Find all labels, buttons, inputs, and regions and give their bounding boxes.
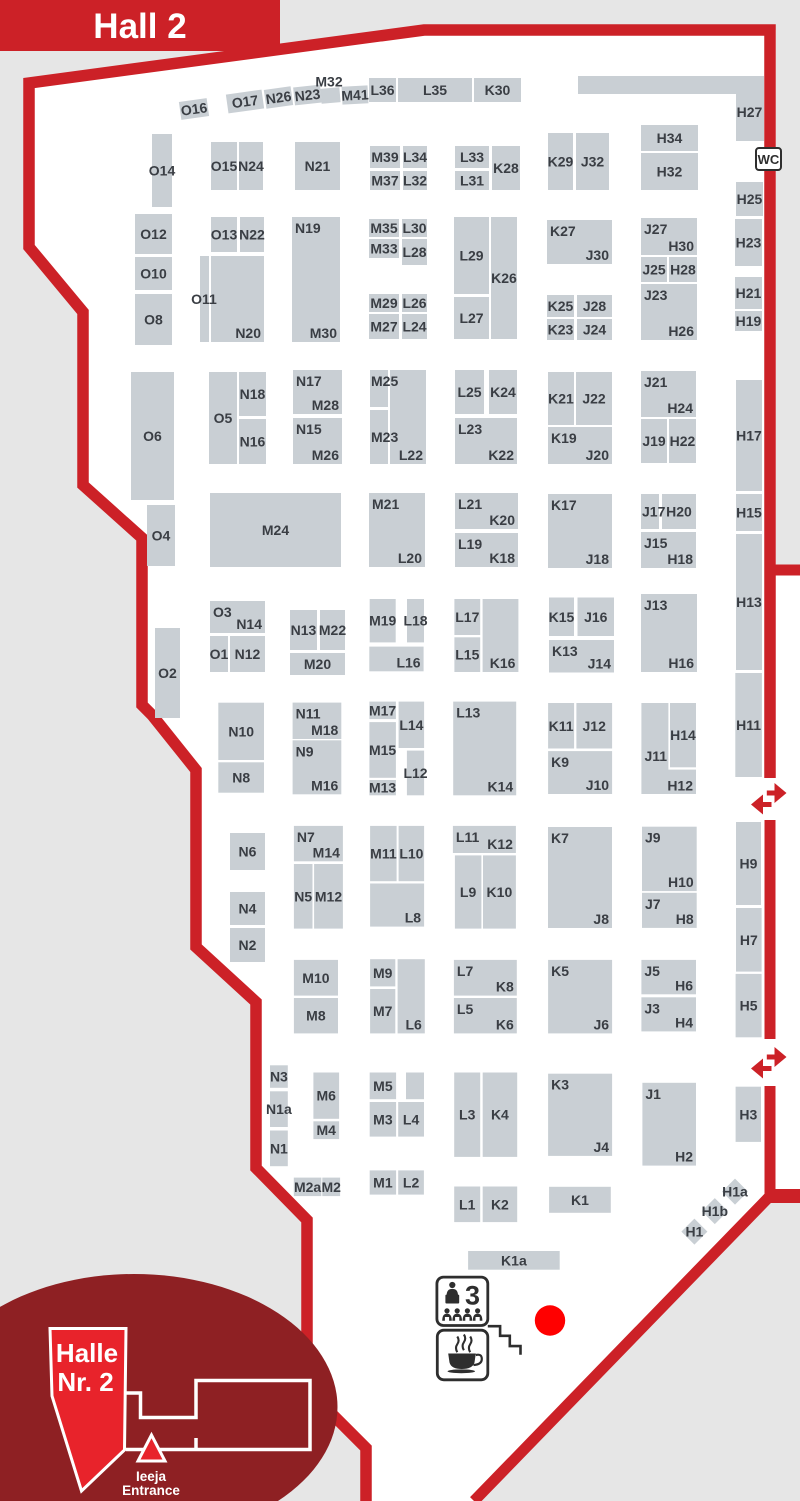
svg-text:J17: J17 [642,504,666,520]
svg-text:J30: J30 [586,247,610,263]
svg-text:L22: L22 [399,447,423,463]
svg-text:O14: O14 [149,163,176,179]
svg-text:O3: O3 [213,604,232,620]
svg-text:M28: M28 [312,397,339,413]
svg-text:J1: J1 [645,1086,661,1102]
svg-text:O8: O8 [144,312,163,328]
svg-text:L6: L6 [405,1016,422,1032]
svg-text:K18: K18 [489,550,515,566]
svg-text:N14: N14 [236,616,262,632]
svg-text:K12: K12 [487,836,513,852]
svg-text:O4: O4 [152,528,171,544]
svg-text:H25: H25 [737,191,763,207]
svg-text:O2: O2 [158,665,177,681]
svg-text:N19: N19 [295,220,321,236]
svg-text:M23: M23 [371,429,398,445]
svg-text:K30: K30 [485,82,511,98]
svg-text:M37: M37 [371,173,398,189]
svg-text:L15: L15 [455,647,479,663]
svg-text:M25: M25 [371,373,398,389]
svg-text:H24: H24 [667,400,693,416]
svg-text:L13: L13 [456,705,480,721]
svg-text:H26: H26 [668,323,694,339]
svg-text:O1: O1 [210,646,229,662]
svg-text:N6: N6 [239,844,257,860]
svg-text:L24: L24 [402,319,426,335]
svg-text:H5: H5 [740,998,758,1014]
svg-text:J12: J12 [583,718,607,734]
svg-text:J8: J8 [593,911,609,927]
svg-text:K6: K6 [496,1016,514,1032]
svg-text:L33: L33 [460,149,484,165]
svg-text:L19: L19 [458,536,482,552]
svg-text:H19: H19 [736,313,762,329]
svg-text:K14: K14 [488,778,514,794]
svg-text:L16: L16 [396,654,420,670]
svg-text:N20: N20 [235,325,261,341]
svg-text:L36: L36 [370,82,394,98]
svg-text:WC: WC [758,152,780,167]
svg-text:K4: K4 [491,1107,509,1123]
svg-text:H18: H18 [667,551,693,567]
svg-text:M14: M14 [313,844,340,860]
svg-text:N13: N13 [291,622,317,638]
svg-text:J23: J23 [644,287,668,303]
svg-text:M1: M1 [373,1175,393,1191]
svg-text:M26: M26 [312,447,339,463]
svg-text:J28: J28 [583,298,607,314]
svg-text:H34: H34 [657,130,683,146]
svg-text:M39: M39 [371,149,398,165]
svg-text:J10: J10 [586,777,610,793]
svg-text:J11: J11 [645,748,668,764]
svg-text:M32: M32 [315,74,342,90]
svg-text:H15: H15 [736,505,762,521]
svg-text:K23: K23 [548,322,574,338]
svg-text:L23: L23 [458,421,482,437]
svg-text:N1a: N1a [266,1101,292,1117]
svg-text:M5: M5 [373,1078,393,1094]
svg-text:O15: O15 [211,158,238,174]
svg-text:K29: K29 [548,154,574,170]
svg-text:L10: L10 [399,846,423,862]
svg-text:H2: H2 [675,1149,693,1165]
svg-text:L30: L30 [402,220,426,236]
svg-text:M2: M2 [321,1179,341,1195]
svg-text:H21: H21 [736,285,762,301]
svg-text:J20: J20 [586,447,610,463]
svg-text:H14: H14 [670,727,696,743]
svg-text:O13: O13 [211,227,238,243]
svg-text:M20: M20 [304,656,331,672]
svg-text:J9: J9 [645,830,661,846]
svg-text:K15: K15 [549,609,575,625]
svg-text:J18: J18 [586,551,610,567]
svg-text:O5: O5 [214,410,233,426]
svg-text:J22: J22 [582,391,606,407]
svg-text:N8: N8 [232,770,250,786]
svg-text:Halle: Halle [56,1338,118,1368]
svg-text:N21: N21 [305,158,331,174]
svg-text:K9: K9 [551,754,569,770]
svg-text:K2: K2 [491,1196,509,1212]
svg-text:N17: N17 [296,373,322,389]
svg-text:H10: H10 [668,874,694,890]
svg-text:L26: L26 [402,295,426,311]
svg-text:H7: H7 [740,932,758,948]
svg-text:M16: M16 [311,777,338,793]
svg-text:H17: H17 [736,428,762,444]
svg-text:J27: J27 [644,221,668,237]
svg-text:L25: L25 [457,384,481,400]
svg-text:M11: M11 [370,846,397,862]
svg-text:H23: H23 [736,235,762,251]
svg-text:Ieeja: Ieeja [136,1469,167,1484]
svg-text:H11: H11 [736,717,761,733]
svg-text:K1: K1 [571,1192,589,1208]
svg-text:L28: L28 [402,244,426,260]
svg-text:K26: K26 [491,270,517,286]
svg-text:J4: J4 [594,1139,610,1155]
svg-text:N22: N22 [239,227,265,243]
svg-text:M24: M24 [262,522,289,538]
svg-text:M21: M21 [372,496,399,512]
svg-text:L12: L12 [403,765,427,781]
svg-text:N2: N2 [239,937,257,953]
svg-text:K22: K22 [488,447,514,463]
svg-text:H12: H12 [667,778,693,794]
svg-text:N18: N18 [240,386,266,402]
svg-text:J5: J5 [644,963,660,979]
svg-text:H30: H30 [668,238,694,254]
svg-text:M13: M13 [369,780,396,796]
svg-text:M4: M4 [316,1122,336,1138]
svg-text:J13: J13 [644,597,668,613]
svg-text:H6: H6 [675,977,693,993]
svg-text:M27: M27 [370,319,397,335]
svg-text:M9: M9 [373,965,393,981]
svg-text:K16: K16 [490,655,516,671]
svg-text:L4: L4 [403,1111,420,1127]
svg-text:K28: K28 [493,160,519,176]
svg-text:L7: L7 [457,963,474,979]
svg-text:L21: L21 [458,496,482,512]
svg-text:J15: J15 [644,535,668,551]
svg-text:M35: M35 [370,220,397,236]
svg-text:L34: L34 [403,149,427,165]
svg-text:L8: L8 [405,910,422,926]
svg-text:L5: L5 [457,1001,474,1017]
svg-text:K17: K17 [551,497,577,513]
svg-text:H28: H28 [670,262,696,278]
svg-text:N10: N10 [228,723,254,739]
svg-text:N24: N24 [238,158,264,174]
svg-text:N5: N5 [294,888,312,904]
svg-text:O10: O10 [140,266,167,282]
svg-text:L18: L18 [403,613,427,629]
svg-text:H1b: H1b [702,1203,728,1219]
svg-text:K27: K27 [550,223,576,239]
svg-text:N1: N1 [270,1140,288,1156]
svg-text:M2a: M2a [294,1179,321,1195]
svg-text:Entrance: Entrance [122,1483,180,1498]
svg-text:H4: H4 [675,1014,693,1030]
svg-text:M41: M41 [341,86,369,103]
svg-text:L32: L32 [403,173,427,189]
svg-text:M22: M22 [319,622,346,638]
svg-text:H13: H13 [736,594,762,610]
svg-text:K24: K24 [490,384,516,400]
svg-text:L14: L14 [399,717,423,733]
svg-text:J7: J7 [645,896,661,912]
svg-text:M3: M3 [373,1111,393,1127]
svg-text:H32: H32 [657,164,683,180]
svg-text:J6: J6 [594,1016,610,1032]
svg-text:J3: J3 [644,1000,660,1016]
svg-text:L1: L1 [459,1196,476,1212]
svg-text:M12: M12 [315,888,342,904]
svg-text:N4: N4 [239,901,257,917]
svg-text:H1: H1 [685,1224,703,1240]
svg-text:L2: L2 [403,1175,420,1191]
svg-text:M30: M30 [310,325,337,341]
svg-text:J16: J16 [584,609,608,625]
svg-text:H3: H3 [739,1106,757,1122]
svg-text:H1a: H1a [722,1184,748,1200]
svg-text:M6: M6 [316,1088,336,1104]
svg-text:K5: K5 [551,963,569,979]
svg-text:L17: L17 [455,609,479,625]
svg-text:N3: N3 [270,1069,288,1085]
svg-text:J25: J25 [642,262,666,278]
svg-text:O6: O6 [143,428,162,444]
svg-text:H16: H16 [668,655,694,671]
svg-text:M33: M33 [370,241,397,257]
svg-text:M8: M8 [306,1008,326,1024]
svg-text:N9: N9 [296,743,314,759]
svg-text:L31: L31 [460,173,484,189]
svg-text:H22: H22 [670,433,696,449]
svg-text:J24: J24 [583,322,607,338]
svg-text:L29: L29 [459,248,483,264]
svg-text:Nr. 2: Nr. 2 [57,1367,113,1397]
svg-text:L27: L27 [459,310,483,326]
svg-text:L20: L20 [398,550,422,566]
svg-text:J14: J14 [588,656,612,672]
svg-text:M18: M18 [311,722,338,738]
svg-text:L3: L3 [459,1107,476,1123]
svg-text:K1a: K1a [501,1252,527,1268]
svg-text:K25: K25 [548,298,574,314]
svg-text:N7: N7 [297,829,315,845]
svg-text:O12: O12 [140,226,167,242]
svg-text:N16: N16 [240,434,266,450]
svg-text:L9: L9 [460,884,477,900]
svg-text:K20: K20 [489,512,515,528]
svg-text:M29: M29 [370,295,397,311]
svg-text:O11: O11 [191,291,217,307]
svg-text:N15: N15 [296,421,322,437]
svg-text:N11: N11 [296,706,321,722]
svg-text:K7: K7 [551,830,569,846]
svg-text:J32: J32 [581,154,605,170]
svg-text:H9: H9 [740,856,758,872]
svg-text:L35: L35 [423,82,447,98]
svg-text:M15: M15 [369,742,396,758]
svg-text:K13: K13 [552,643,578,659]
svg-text:H8: H8 [676,911,694,927]
svg-text:J19: J19 [642,433,666,449]
svg-text:H27: H27 [737,104,763,120]
svg-text:M10: M10 [302,970,329,986]
svg-text:K8: K8 [496,979,514,995]
svg-text:3: 3 [465,1281,480,1311]
svg-text:L11: L11 [456,829,480,845]
svg-text:H20: H20 [666,504,692,520]
svg-text:K3: K3 [551,1077,569,1093]
svg-text:K19: K19 [551,430,577,446]
svg-text:J21: J21 [644,374,668,390]
svg-text:K11: K11 [549,718,574,734]
svg-text:K21: K21 [548,391,574,407]
svg-text:Hall 2: Hall 2 [93,7,186,46]
svg-text:N12: N12 [235,646,261,662]
svg-text:K10: K10 [487,884,513,900]
svg-text:M19: M19 [369,613,396,629]
svg-text:M7: M7 [373,1003,393,1019]
svg-text:M17: M17 [369,702,396,718]
